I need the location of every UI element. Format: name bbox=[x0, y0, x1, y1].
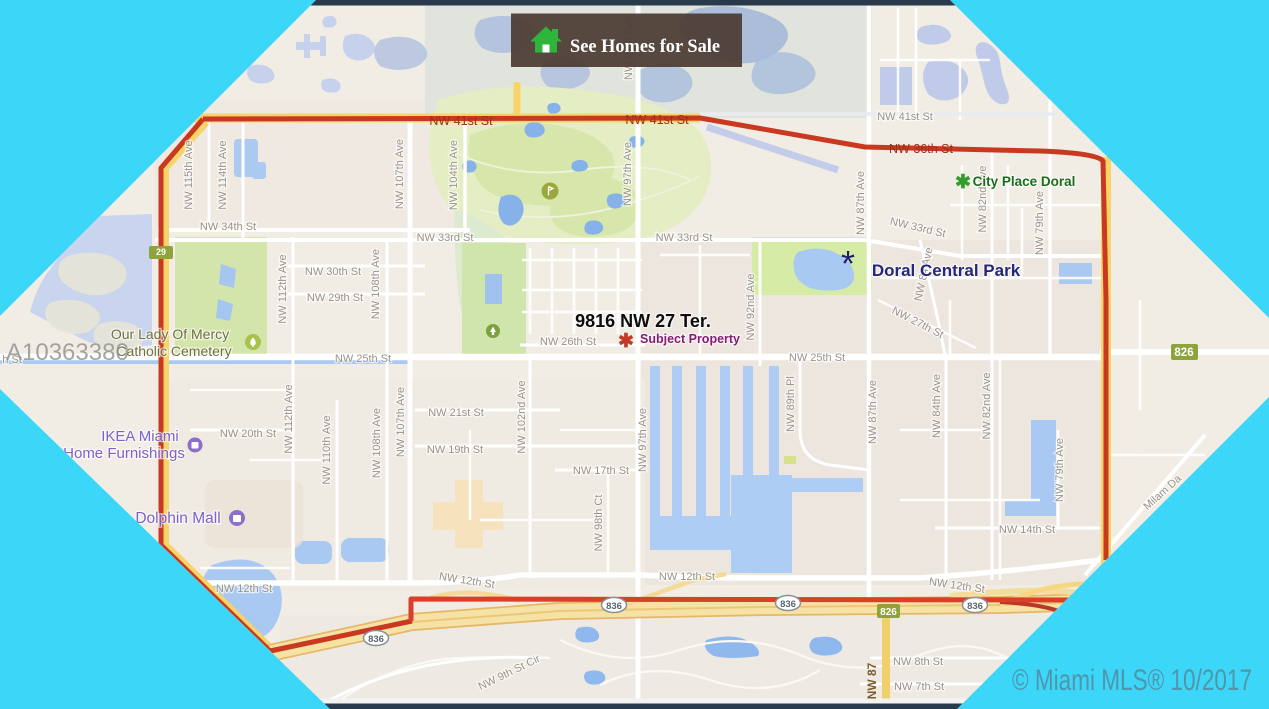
svg-text:Catholic Cemetery: Catholic Cemetery bbox=[116, 343, 231, 359]
svg-text:✱: ✱ bbox=[618, 331, 634, 352]
svg-text:NW 114th Ave: NW 114th Ave bbox=[217, 140, 229, 209]
svg-text:City Place Doral: City Place Doral bbox=[973, 174, 1076, 189]
svg-text:NW 25th St: NW 25th St bbox=[789, 352, 845, 364]
svg-text:NW 87th Ave: NW 87th Ave bbox=[855, 171, 867, 235]
svg-text:NW 36th St: NW 36th St bbox=[889, 142, 953, 156]
svg-text:NW 79th Ave: NW 79th Ave bbox=[1054, 438, 1066, 502]
svg-text:Dolphin Mall: Dolphin Mall bbox=[135, 510, 220, 527]
svg-text:NW 8th St: NW 8th St bbox=[893, 656, 943, 668]
svg-text:NW 12th St: NW 12th St bbox=[216, 583, 272, 595]
svg-text:See Homes for Sale: See Homes for Sale bbox=[570, 36, 720, 57]
svg-text:NW 112th Ave: NW 112th Ave bbox=[283, 384, 295, 453]
svg-text:NW 108th Ave: NW 108th Ave bbox=[370, 249, 382, 319]
svg-text:NW 25th St: NW 25th St bbox=[335, 353, 391, 365]
svg-text:NW 108th Ave: NW 108th Ave bbox=[371, 408, 383, 478]
svg-text:NW 21st St: NW 21st St bbox=[428, 407, 484, 419]
svg-text:9816 NW 27 Ter.: 9816 NW 27 Ter. bbox=[575, 311, 711, 331]
svg-text:NW 41st St: NW 41st St bbox=[429, 114, 493, 128]
svg-text:NW 79th Ave: NW 79th Ave bbox=[1034, 191, 1046, 255]
svg-text:NW 20th St: NW 20th St bbox=[220, 428, 276, 440]
svg-text:NW 33rd St: NW 33rd St bbox=[656, 232, 713, 244]
svg-text:NW 104th Ave: NW 104th Ave bbox=[448, 140, 460, 210]
svg-text:NW 102nd Ave: NW 102nd Ave bbox=[516, 380, 528, 453]
svg-text:826: 826 bbox=[1174, 347, 1193, 359]
svg-text:NW 87th Ave: NW 87th Ave bbox=[867, 380, 879, 444]
svg-text:NW 14th St: NW 14th St bbox=[999, 524, 1055, 536]
svg-text:NW 7th St: NW 7th St bbox=[894, 681, 944, 693]
svg-text:A10363380: A10363380 bbox=[6, 339, 129, 366]
svg-text:NW 115th Ave: NW 115th Ave bbox=[183, 140, 195, 209]
svg-text:NW 84th Ave: NW 84th Ave bbox=[931, 374, 943, 438]
svg-text:NW 87: NW 87 bbox=[865, 662, 879, 699]
svg-text:NW 110th Ave: NW 110th Ave bbox=[321, 415, 333, 484]
svg-text:NW 29th St: NW 29th St bbox=[307, 292, 363, 304]
svg-text:NW 92nd Ave: NW 92nd Ave bbox=[745, 273, 757, 340]
svg-text:NW 41st St: NW 41st St bbox=[877, 111, 933, 123]
svg-text:836: 836 bbox=[368, 634, 384, 645]
svg-text:826: 826 bbox=[880, 607, 897, 618]
svg-text:NW 97th Ave: NW 97th Ave bbox=[637, 408, 649, 472]
svg-text:© Miami MLS® 10/2017: © Miami MLS® 10/2017 bbox=[1012, 664, 1252, 697]
svg-text:NW 30th St: NW 30th St bbox=[305, 266, 361, 278]
svg-text:Doral Central Park: Doral Central Park bbox=[872, 261, 1021, 280]
svg-text:NW 12th St: NW 12th St bbox=[659, 571, 715, 583]
svg-text:29: 29 bbox=[156, 247, 166, 257]
svg-text:NW 98th Ct: NW 98th Ct bbox=[593, 495, 605, 552]
svg-text:NW 107th Ave: NW 107th Ave bbox=[395, 387, 407, 457]
svg-text:NW 26th St: NW 26th St bbox=[540, 336, 596, 348]
svg-text:IKEA Miami: IKEA Miami bbox=[101, 428, 179, 445]
svg-text:NW 107th Ave: NW 107th Ave bbox=[394, 139, 406, 209]
svg-text:NW 34th St: NW 34th St bbox=[200, 221, 256, 233]
svg-text:NW 82nd Ave: NW 82nd Ave bbox=[981, 372, 993, 439]
svg-text:✱: ✱ bbox=[955, 172, 971, 193]
svg-text:NW 41st St: NW 41st St bbox=[625, 113, 689, 127]
svg-text:NW 17th St: NW 17th St bbox=[573, 465, 629, 477]
svg-text:836: 836 bbox=[606, 601, 622, 612]
svg-text:*: * bbox=[841, 243, 855, 284]
svg-text:NW 19th St: NW 19th St bbox=[427, 444, 483, 456]
svg-text:NW 89th Pl: NW 89th Pl bbox=[785, 376, 797, 432]
svg-text:NW 112th Ave: NW 112th Ave bbox=[277, 254, 289, 323]
svg-text:NW 97th Ave: NW 97th Ave bbox=[622, 142, 634, 206]
svg-text:Home Furnishings: Home Furnishings bbox=[63, 445, 185, 462]
svg-text:836: 836 bbox=[967, 601, 983, 612]
svg-text:836: 836 bbox=[780, 599, 796, 610]
svg-text:Subject Property: Subject Property bbox=[640, 332, 740, 346]
svg-text:NW 33rd St: NW 33rd St bbox=[417, 232, 474, 244]
